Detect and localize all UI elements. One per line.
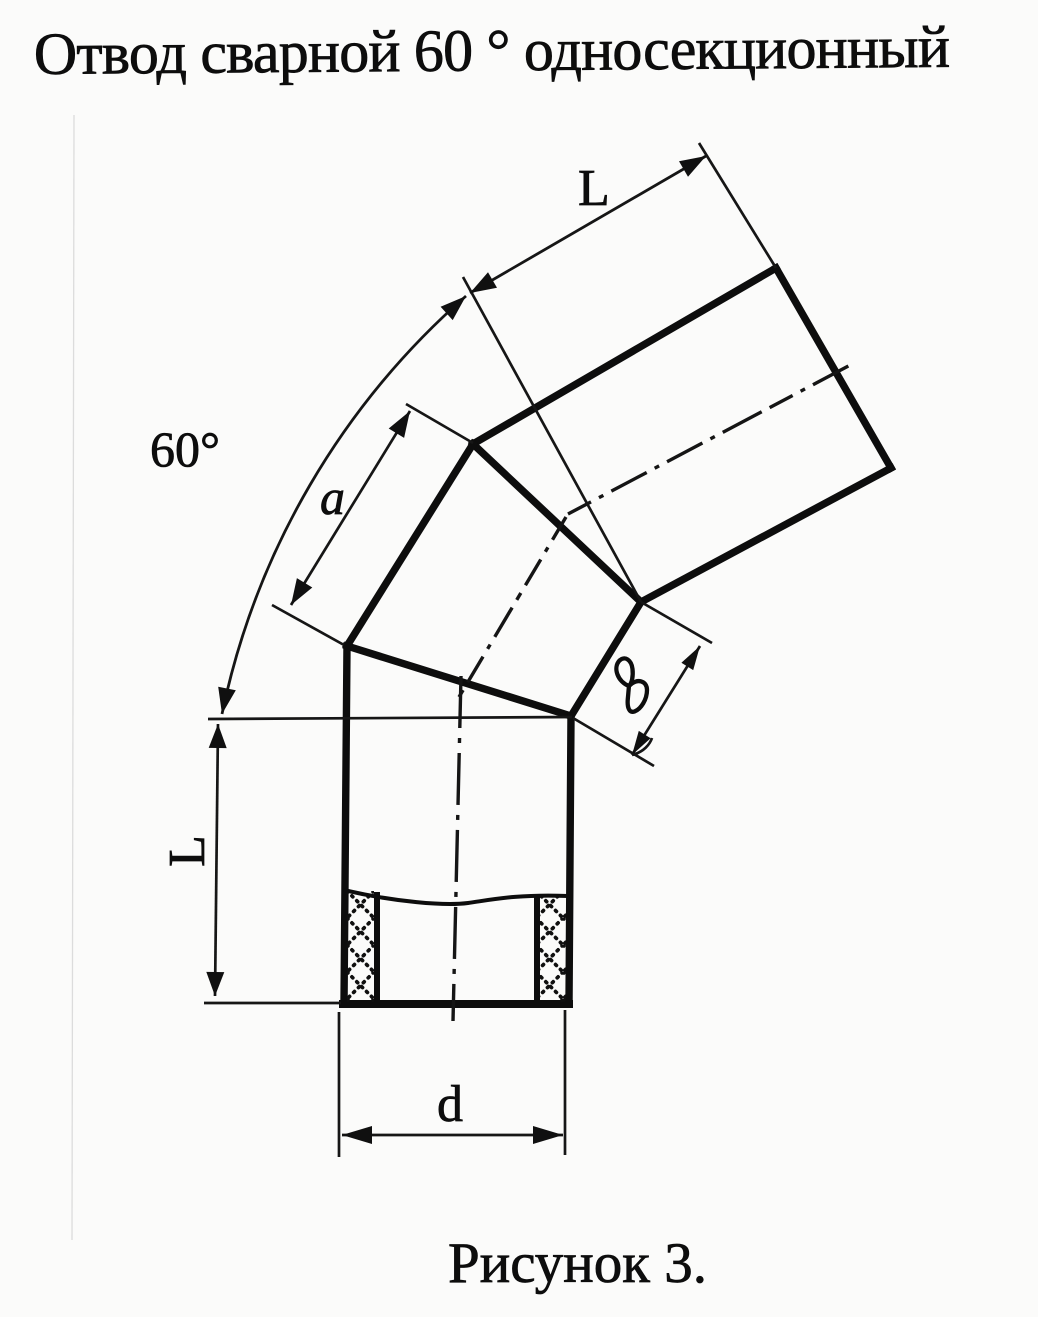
svg-text:a: a <box>320 469 345 525</box>
svg-text:d: d <box>437 1076 463 1133</box>
svg-text:L: L <box>159 835 216 867</box>
svg-text:Рисунок 3.: Рисунок 3. <box>448 1232 707 1295</box>
svg-text:60°: 60° <box>150 421 220 477</box>
svg-text:Отвод сварной 60 ° односекцион: Отвод сварной 60 ° односекционный <box>34 14 950 87</box>
svg-text:L: L <box>578 160 610 217</box>
